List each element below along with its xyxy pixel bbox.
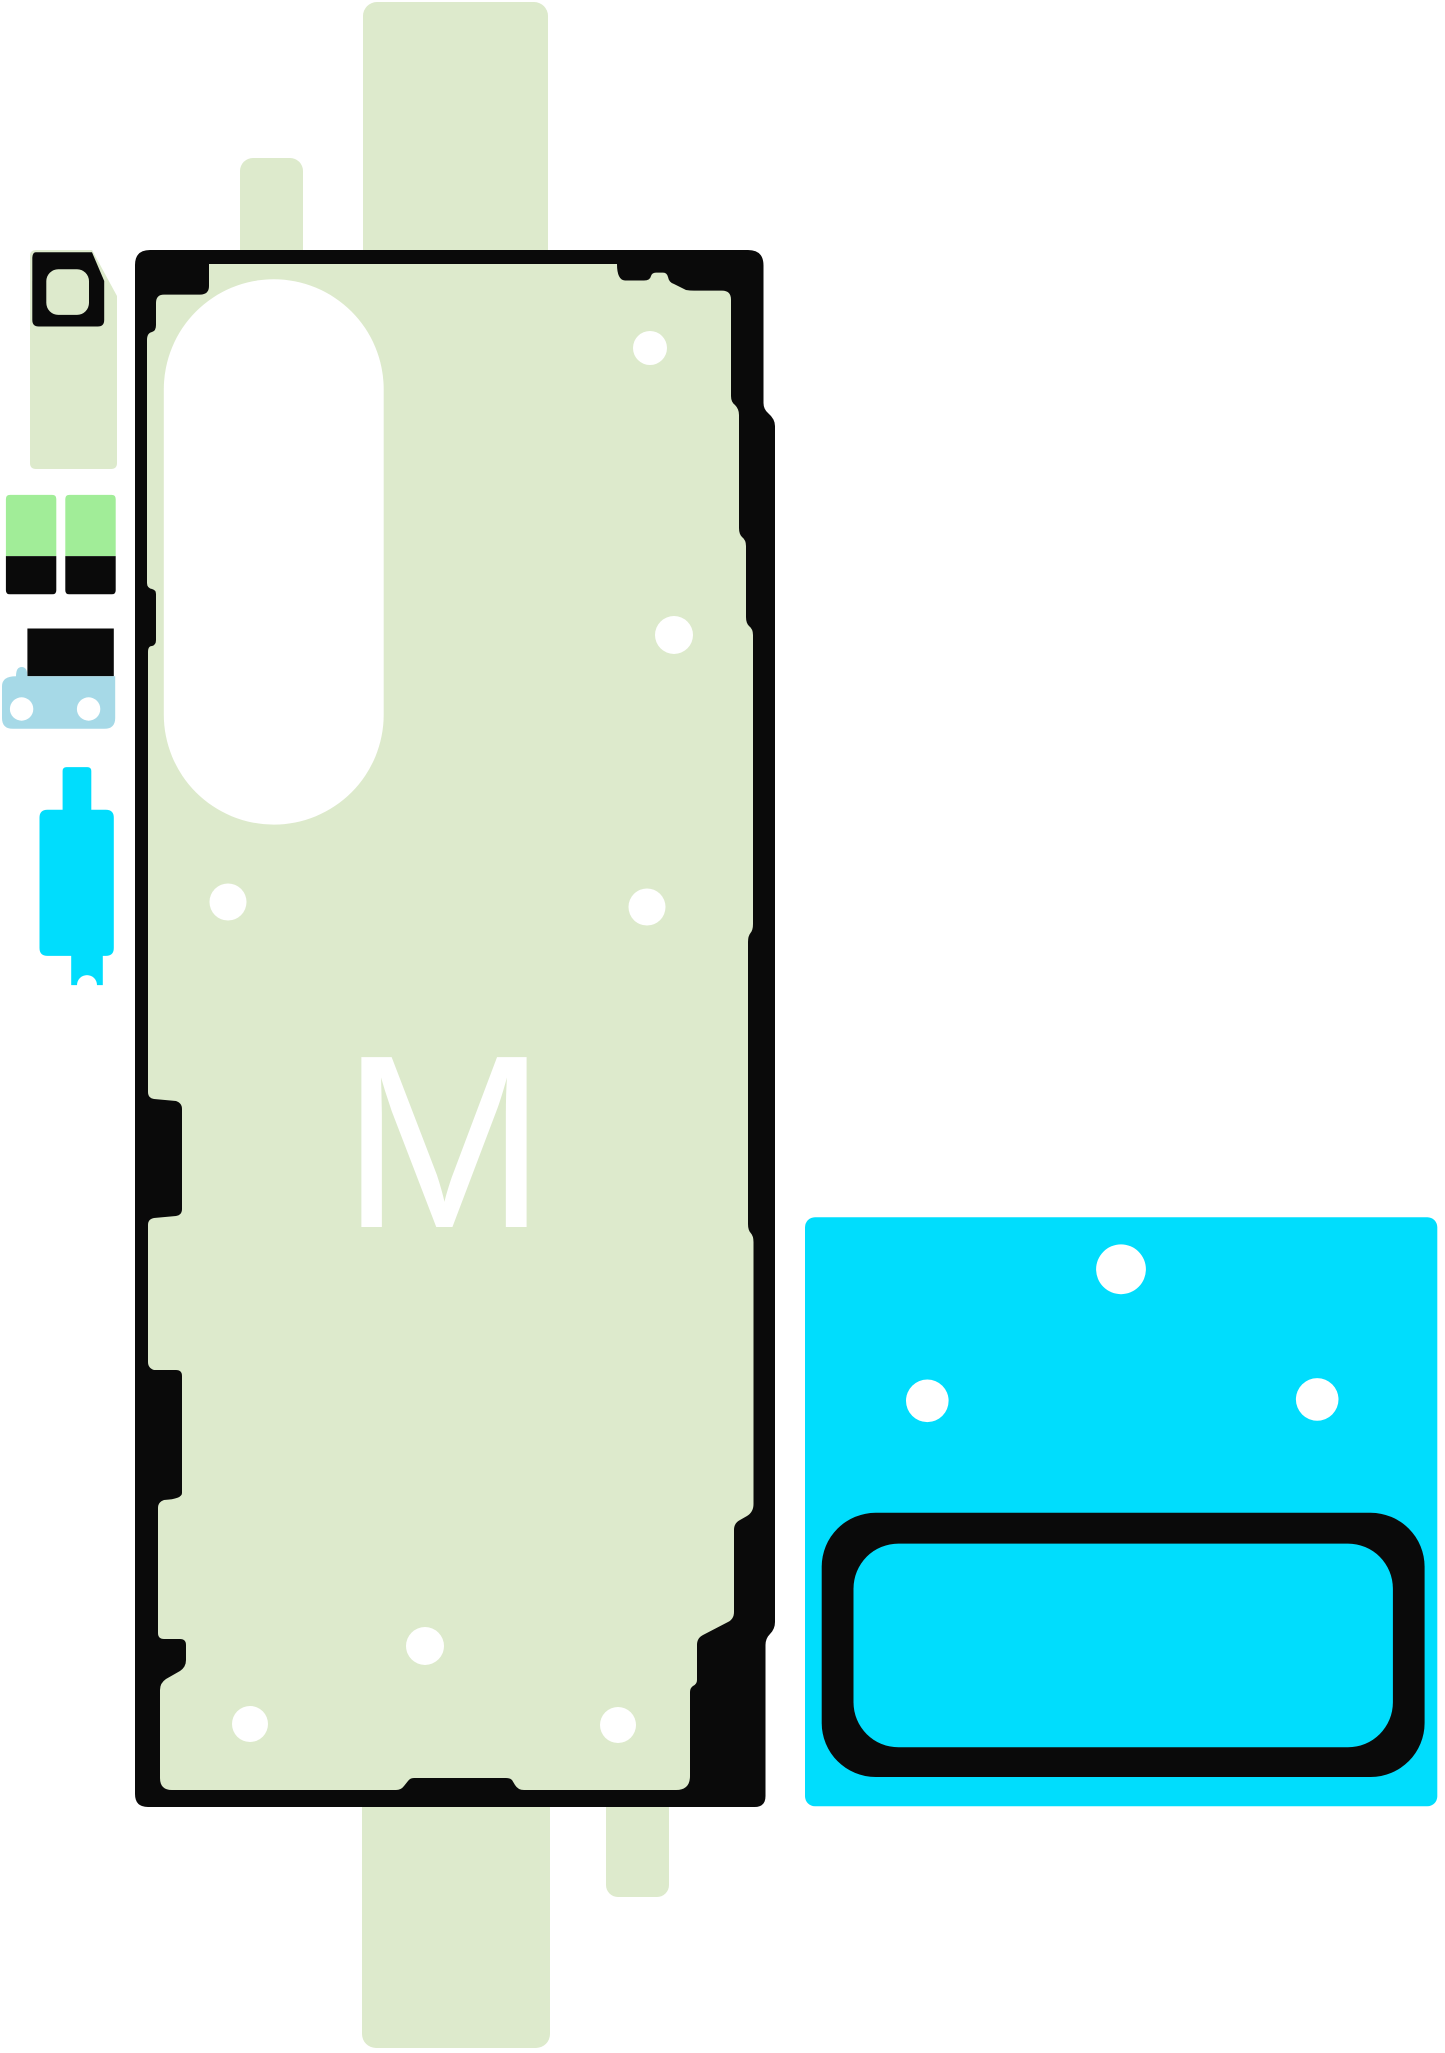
- svg-text:M: M: [341, 1004, 547, 1280]
